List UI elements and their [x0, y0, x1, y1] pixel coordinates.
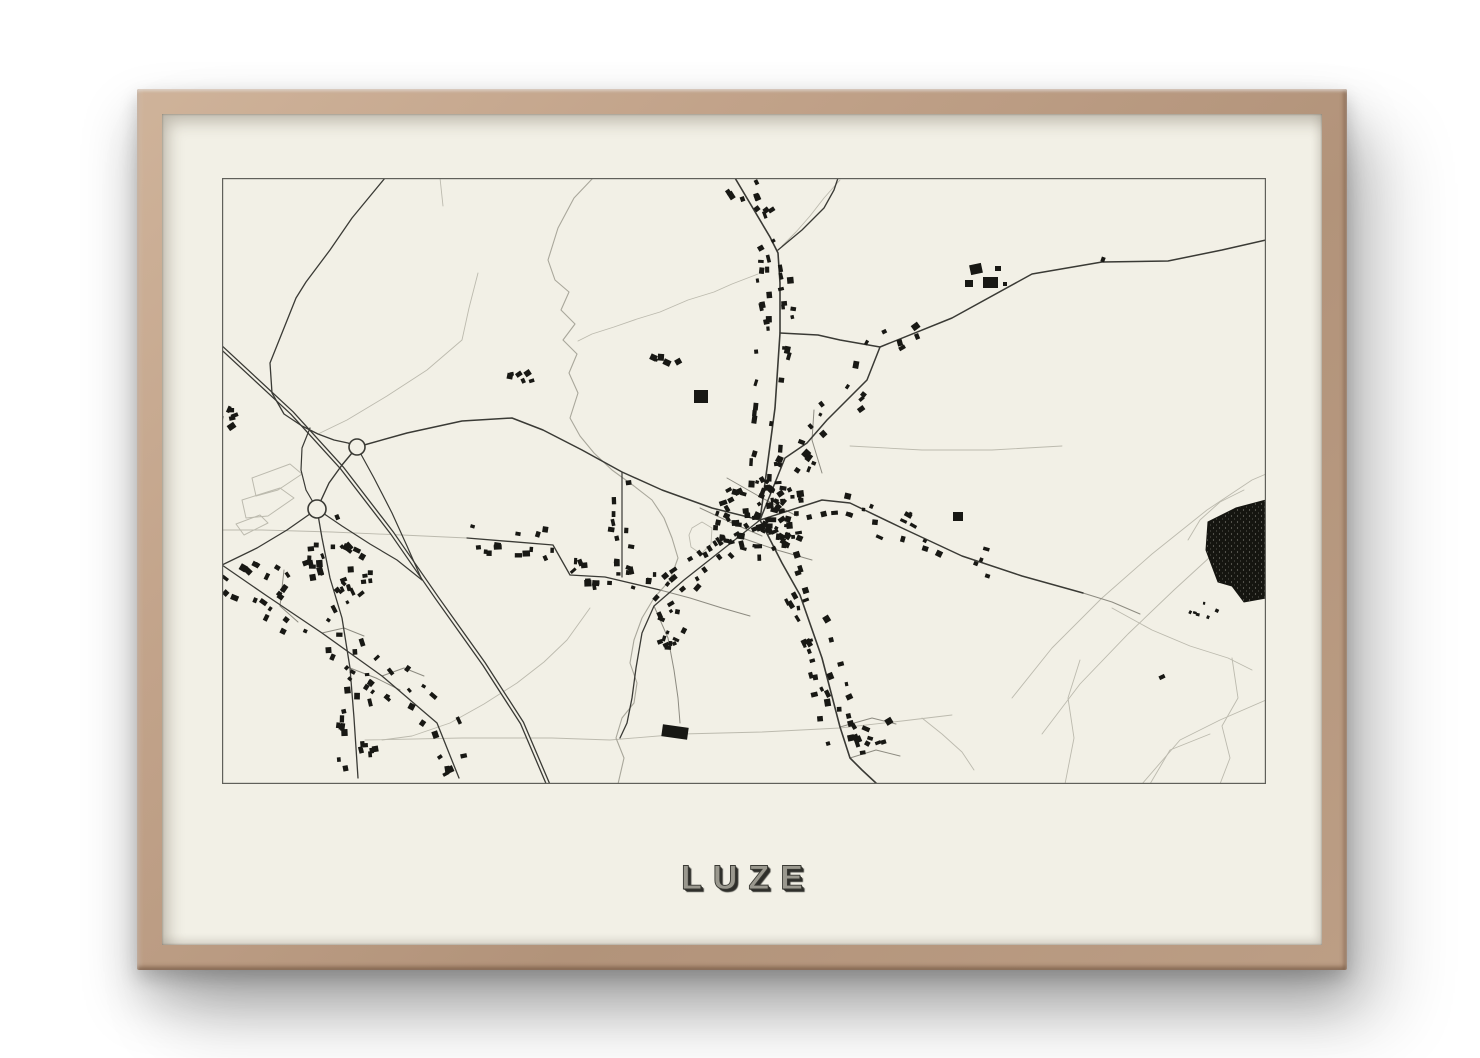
- city-map-svg: [222, 178, 1266, 784]
- poster-mat: LUZE: [162, 114, 1322, 945]
- poster-frame: LUZE: [137, 89, 1347, 970]
- poster-title: LUZE: [162, 858, 1322, 898]
- wall-background: LUZE: [0, 0, 1480, 1058]
- map-panel: [222, 178, 1266, 784]
